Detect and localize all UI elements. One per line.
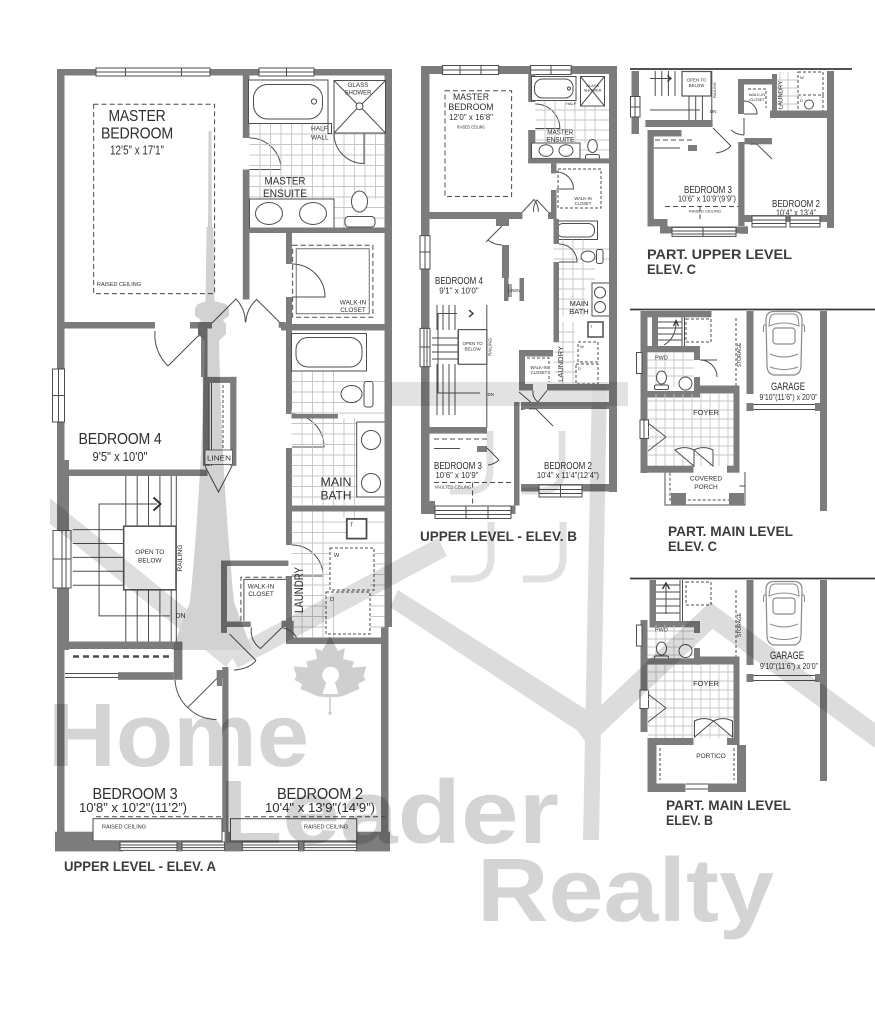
svg-text:GARAGE: GARAGE [771,381,805,393]
svg-text:ELEV. C: ELEV. C [647,261,696,277]
svg-text:PORTICO: PORTICO [696,753,726,760]
svg-text:STORAGE: STORAGE [737,342,743,367]
svg-text:BEDROOM: BEDROOM [101,126,173,143]
svg-text:SHOWER: SHOWER [345,90,373,97]
svg-text:9'5" x 10'0": 9'5" x 10'0" [93,450,148,464]
svg-text:ENSUITE: ENSUITE [263,188,307,200]
svg-text:OPEN TO: OPEN TO [687,78,707,83]
svg-text:RAISED CEILING: RAISED CEILING [97,282,141,288]
svg-text:W: W [334,553,340,559]
svg-text:W: W [800,75,804,80]
svg-text:UPPER LEVEL - ELEV. A: UPPER LEVEL - ELEV. A [64,858,216,874]
svg-text:10'4" x 11'4"(12’4"): 10'4" x 11'4"(12’4") [537,471,599,480]
svg-text:BELOW: BELOW [689,83,705,88]
svg-text:MASTER: MASTER [109,108,166,125]
svg-text:LAUNDRY: LAUNDRY [294,567,306,613]
svg-text:CLOSET: CLOSET [749,97,766,102]
svg-text:BEDROOM: BEDROOM [449,102,494,113]
svg-text:LAUNDRY: LAUNDRY [556,346,565,382]
svg-text:RAILING: RAILING [712,82,717,98]
svg-text:CLOSET: CLOSET [248,591,274,598]
svg-text:10'8" x 10'2"(11’2”): 10'8" x 10'2"(11’2”) [79,801,187,815]
svg-text:9'1" x 10'0": 9'1" x 10'0" [439,287,479,296]
svg-text:12’5" x 17'1": 12’5" x 17'1" [110,144,164,158]
svg-text:COVERED: COVERED [690,476,722,483]
svg-text:CLOSET: CLOSET [575,201,592,206]
svg-text:D: D [578,366,581,371]
svg-text:ELEV. B: ELEV. B [666,812,713,828]
svg-text:GLASS: GLASS [348,82,369,89]
svg-text:Realty: Realty [477,841,774,941]
svg-text:WALK-IN: WALK-IN [340,300,367,307]
svg-text:WALK-IN: WALK-IN [248,584,275,591]
svg-text:D: D [800,98,803,103]
svg-text:MASTER: MASTER [547,130,573,137]
svg-text:10’6" x 10’9": 10’6" x 10’9" [436,471,479,480]
svg-text:SHOWER: SHOWER [584,88,602,93]
svg-text:PART. UPPER LEVEL: PART. UPPER LEVEL [647,246,792,262]
svg-text:MAIN: MAIN [321,477,352,489]
svg-text:BATH: BATH [321,491,352,503]
svg-text:HALF: HALF [311,126,328,133]
svg-text:BELOW: BELOW [138,558,162,565]
svg-text:RAISED CEILING: RAISED CEILING [102,825,146,831]
svg-text:W: W [580,344,584,349]
svg-text:RAISED CEILING: RAISED CEILING [457,125,485,130]
svg-text:OPEN TO: OPEN TO [463,341,484,346]
svg-text:UPPER LEVEL - ELEV. B: UPPER LEVEL - ELEV. B [420,528,577,544]
svg-text:PORCH: PORCH [694,484,718,491]
svg-text:BEDROOM 4: BEDROOM 4 [79,431,163,448]
svg-text:9’10"(11’6”) x 20’0”: 9’10"(11’6”) x 20’0” [760,393,818,402]
svg-text:RAISED CEILING: RAISED CEILING [689,209,721,214]
svg-text:PWD: PWD [655,356,668,362]
svg-text:FOYER: FOYER [693,679,719,688]
svg-text:LINEN: LINEN [508,288,520,293]
svg-text:BEDROOM 4: BEDROOM 4 [435,276,483,287]
svg-text:RAILING: RAILING [177,544,184,571]
svg-text:10’6" x 10’9"(9’9”): 10’6" x 10’9"(9’9”) [678,195,736,204]
svg-text:FOYER: FOYER [693,408,719,417]
svg-text:BELOW: BELOW [464,347,481,352]
svg-text:12'0" x 16’8": 12'0" x 16’8" [449,113,493,122]
svg-text:PART. MAIN LEVEL: PART. MAIN LEVEL [666,797,791,813]
svg-text:CLOSET: CLOSET [340,307,366,314]
svg-text:PWD: PWD [655,628,668,634]
svg-text:BATH: BATH [569,307,588,316]
svg-text:MASTER: MASTER [265,176,306,188]
svg-text:OPEN TO: OPEN TO [135,549,164,556]
svg-text:HALF: HALF [566,101,577,106]
svg-text:WALL: WALL [311,135,329,142]
svg-text:DN: DN [710,109,717,114]
svg-text:LAUNDRY: LAUNDRY [779,81,785,110]
svg-text:PART. MAIN LEVEL: PART. MAIN LEVEL [668,523,793,539]
svg-text:RAILING: RAILING [488,338,493,357]
svg-text:ELEV. C: ELEV. C [668,538,717,554]
svg-text:CLOSET: CLOSET [531,370,548,375]
